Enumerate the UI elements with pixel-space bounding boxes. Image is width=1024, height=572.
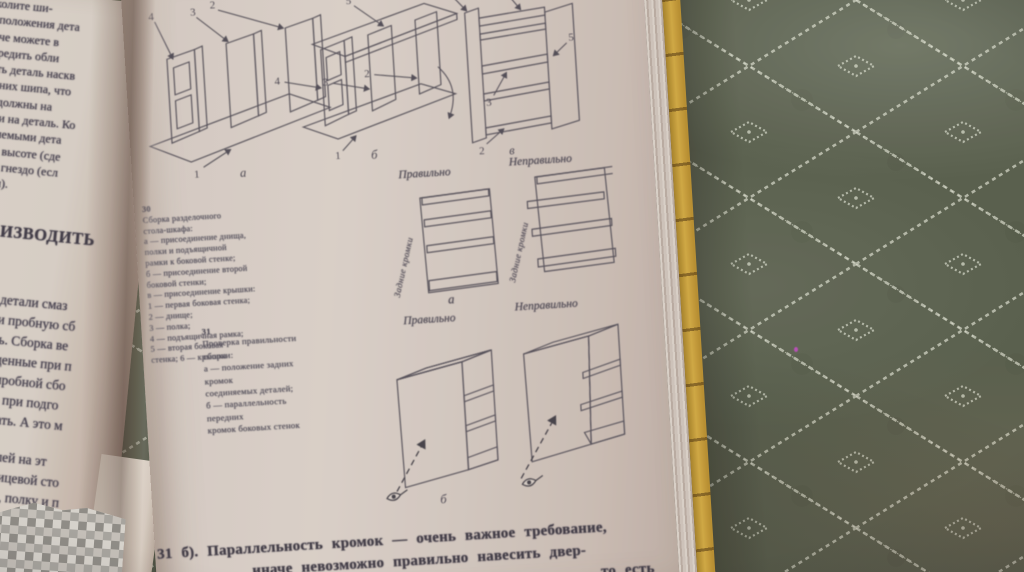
part-label: 1 [335,150,341,162]
part-label: 2 [479,145,485,157]
part-label: 1 [443,0,449,1]
assembly-step-a: 4 3 2 1 а [141,0,334,185]
assembly-step-v: 1 4 5 3 2 в [443,0,581,161]
part-label: 3 [486,97,493,109]
step-letter: а [240,166,247,180]
part-label: 1 [194,169,200,181]
part-label: 5 [345,0,352,7]
part-label: 2 [364,68,370,80]
part-label: 3 [190,6,197,18]
part-label: 2 [209,0,215,12]
left-page-paragraph-2: ить все детали смаз оизвести пробную сб … [0,285,146,443]
subfigure-letter-b: б [440,492,448,506]
part-label: 3 [322,76,329,88]
magenta-artifact-dot [794,347,798,352]
cabinet-correct [383,350,500,500]
left-page-heading: ПРОИЗВОДИТЬ КУ [0,215,153,279]
rear-edges-correct [420,189,499,293]
part-label: 4 [148,11,155,23]
rear-edges-incorrect [525,166,620,272]
right-page-content: 4 3 2 1 а [120,0,717,572]
right-page: 4 3 2 1 а [120,0,717,572]
step-letter: б [371,148,379,162]
eye-icon [521,475,544,488]
caption-fig31: 31 Проверка правильности сборки: а — пол… [201,317,358,438]
part-label: 4 [274,75,281,87]
body-paragraph-line-3-fragment: то есть [601,560,656,572]
fig31a-illustration [382,150,621,314]
photo-scene: наколите ши- ом положения дета иначе мож… [0,0,1024,572]
cabinet-incorrect [512,324,627,478]
fig31b-illustration: б [373,307,655,523]
assembly-step-b: 5 4 3 2 1 б [269,0,465,168]
